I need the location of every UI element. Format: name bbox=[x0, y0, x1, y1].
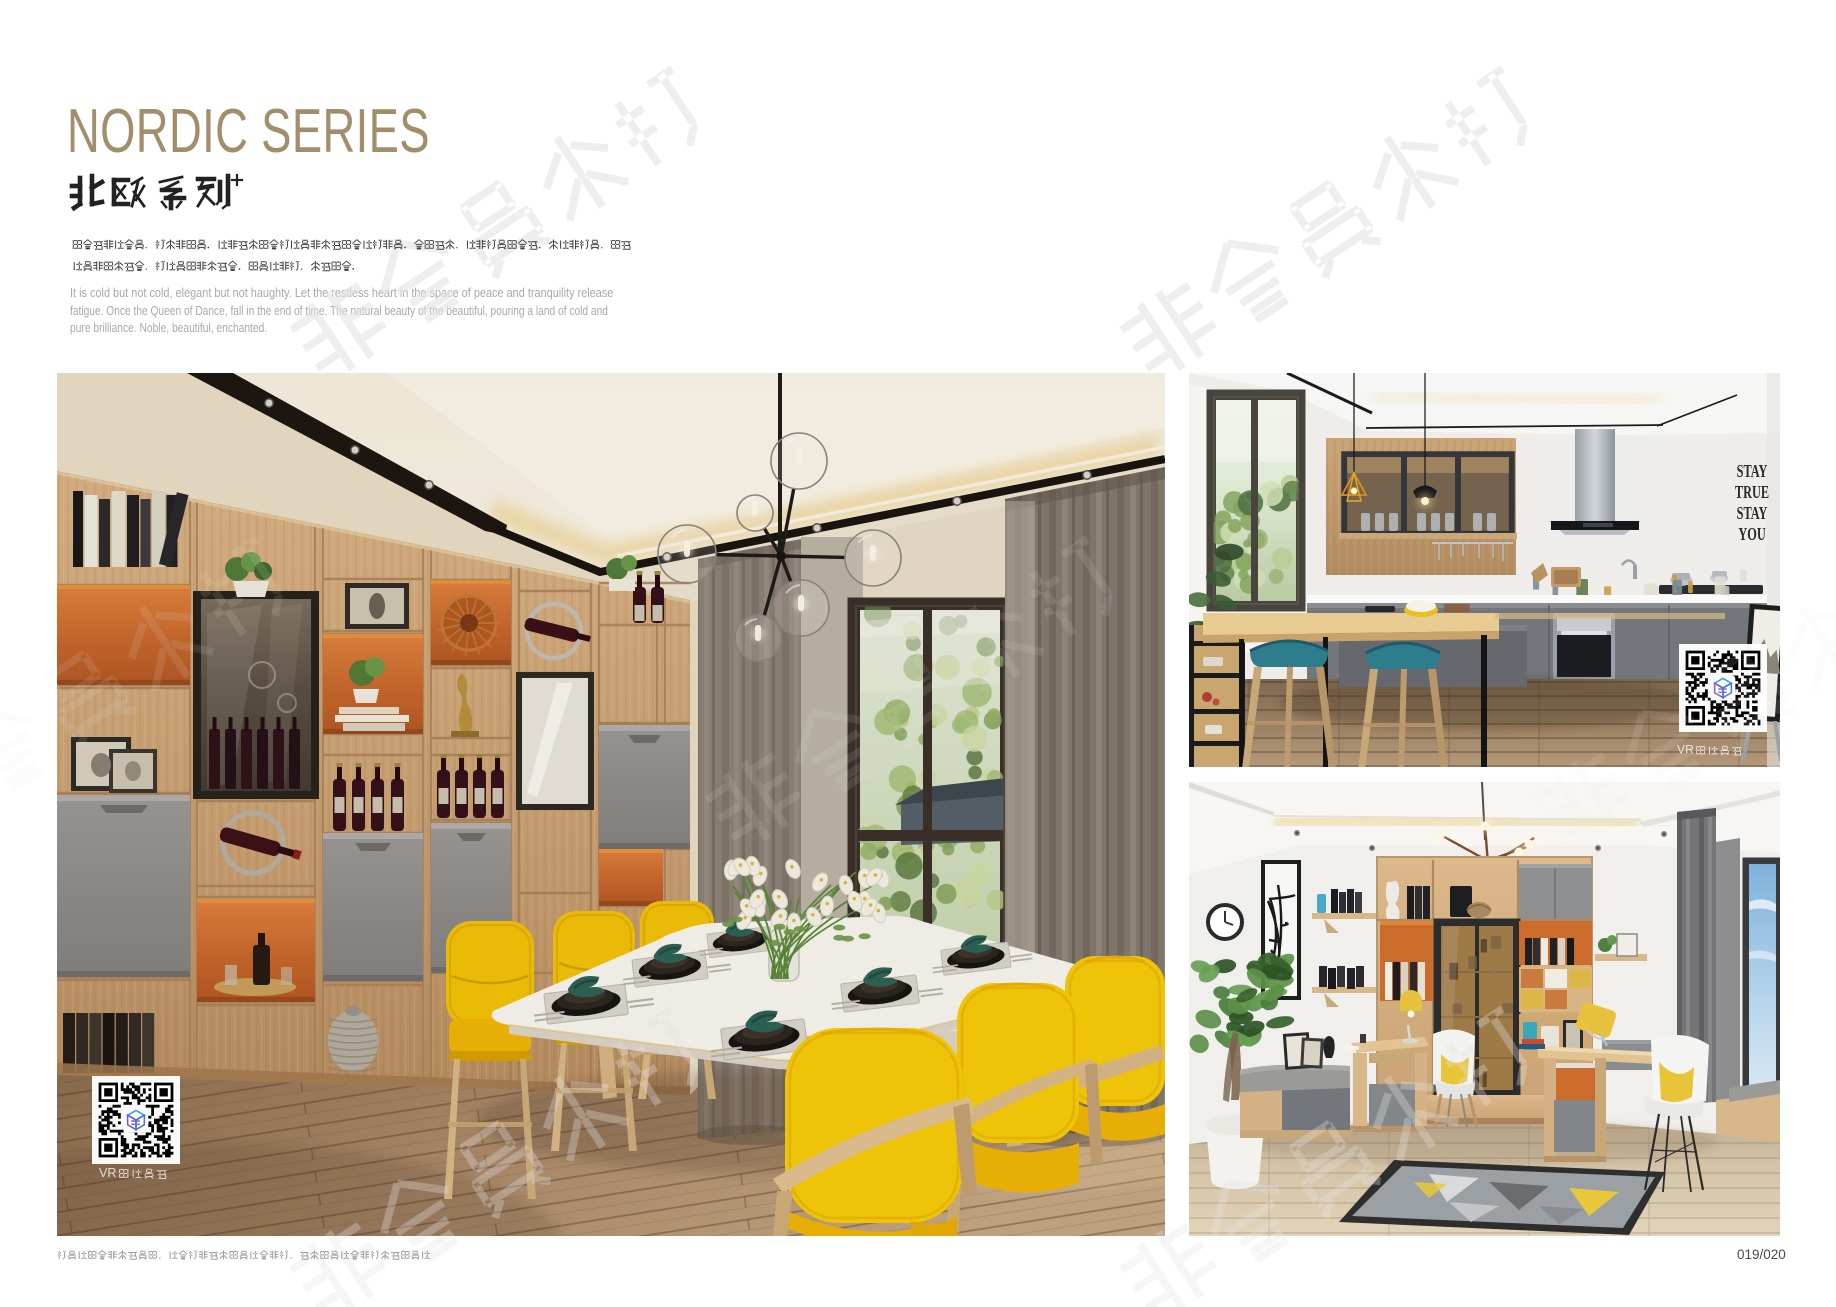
svg-text:STAY: STAY bbox=[1737, 463, 1768, 481]
svg-text:VR: VR bbox=[1677, 743, 1694, 757]
svg-text:VR: VR bbox=[99, 1166, 117, 1180]
svg-text:STAY: STAY bbox=[1737, 505, 1768, 523]
svg-text:YOU: YOU bbox=[1738, 526, 1765, 544]
svg-text:TRUE: TRUE bbox=[1735, 484, 1769, 502]
